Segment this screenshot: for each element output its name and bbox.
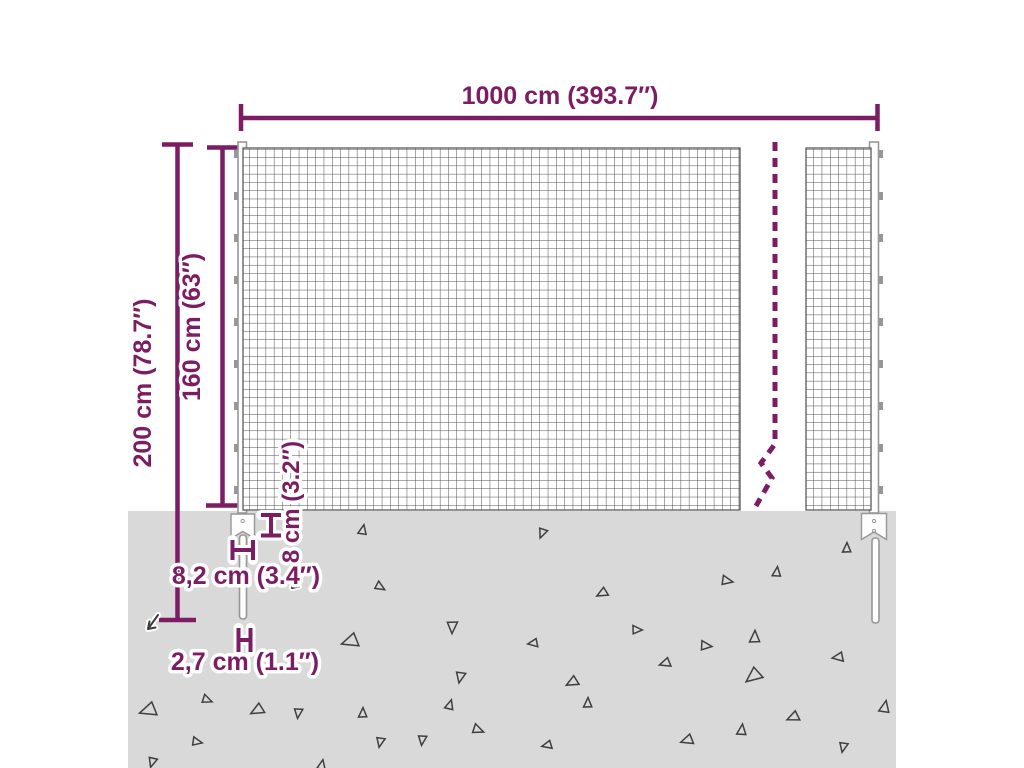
anchor-height-label: 8 cm (3.2″) (278, 441, 305, 563)
mesh-height-label: 160 cm (63″) (178, 253, 206, 401)
spike-width-label: 2,7 cm (1.1″) (171, 648, 319, 676)
length-break-dashed-line (756, 142, 775, 506)
total-width-label: 1000 cm (393.7″) (462, 82, 659, 110)
wire-mesh-panel-main (243, 148, 740, 510)
total-height-label: 200 cm (78.7″) (129, 298, 157, 467)
anchor-width-label: 8,2 cm (3.4″) (172, 562, 320, 590)
right-ground-spike (872, 538, 879, 623)
wire-mesh-panel-right (806, 148, 871, 510)
diagram-canvas: 1000 cm (393.7″) 200 cm (78.7″) 160 cm (… (0, 0, 1024, 768)
fence-dimension-diagram: 1000 cm (393.7″) 200 cm (78.7″) 160 cm (… (0, 0, 1024, 768)
